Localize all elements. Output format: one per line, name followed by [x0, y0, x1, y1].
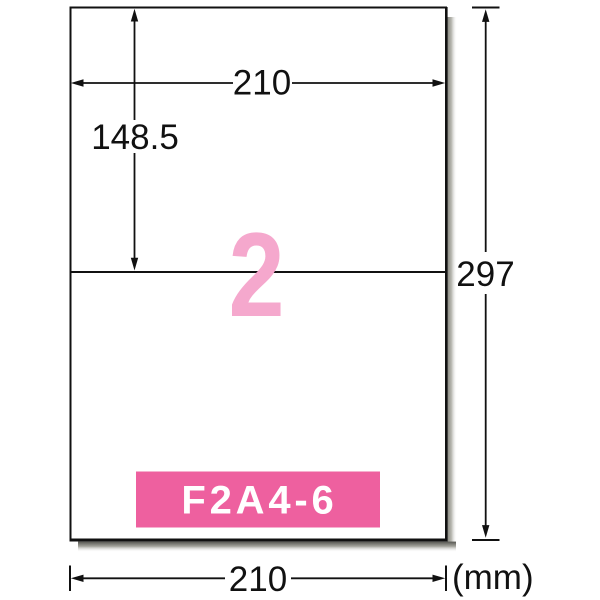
svg-text:148.5: 148.5 — [91, 118, 179, 157]
svg-text:F2A4-6: F2A4-6 — [181, 479, 337, 523]
svg-text:210: 210 — [233, 64, 291, 103]
svg-text:(mm): (mm) — [452, 558, 534, 597]
svg-text:210: 210 — [229, 560, 287, 599]
svg-text:297: 297 — [456, 255, 514, 294]
svg-text:2: 2 — [228, 209, 284, 342]
